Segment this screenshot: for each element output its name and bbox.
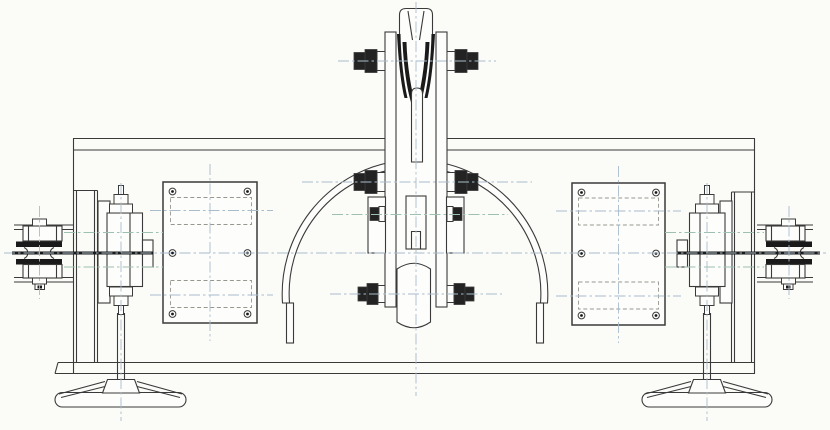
screw-hole: [169, 311, 176, 318]
screw-hole: [578, 250, 585, 257]
screw-hole: [578, 189, 585, 196]
left-support-column: [74, 191, 98, 363]
clamp-block-left: [368, 197, 386, 253]
screw-hole: [653, 250, 660, 257]
screw-hole: [653, 189, 660, 196]
sheave-keeper: [412, 88, 423, 162]
technical-drawing: [0, 0, 830, 430]
left-base-foot: [55, 380, 186, 408]
bottom-barrel-roller: [397, 263, 431, 328]
screw-hole: [244, 188, 251, 195]
screw-hole: [578, 312, 585, 319]
hex-bolt: [447, 207, 462, 222]
right-support-column: [732, 192, 755, 362]
drop-strip-right: [537, 303, 544, 343]
screw-hole: [653, 312, 660, 319]
cheek-plate-right: [436, 32, 447, 307]
drop-strip-left: [287, 303, 294, 343]
cheek-plate-left: [385, 32, 396, 307]
screw-hole: [169, 188, 176, 195]
sprocket-top-pin: [782, 219, 796, 227]
screw-hole: [244, 311, 251, 318]
clamp-block-right: [447, 197, 465, 253]
drawing-canvas: [0, 0, 830, 430]
hex-bolt: [370, 207, 385, 222]
